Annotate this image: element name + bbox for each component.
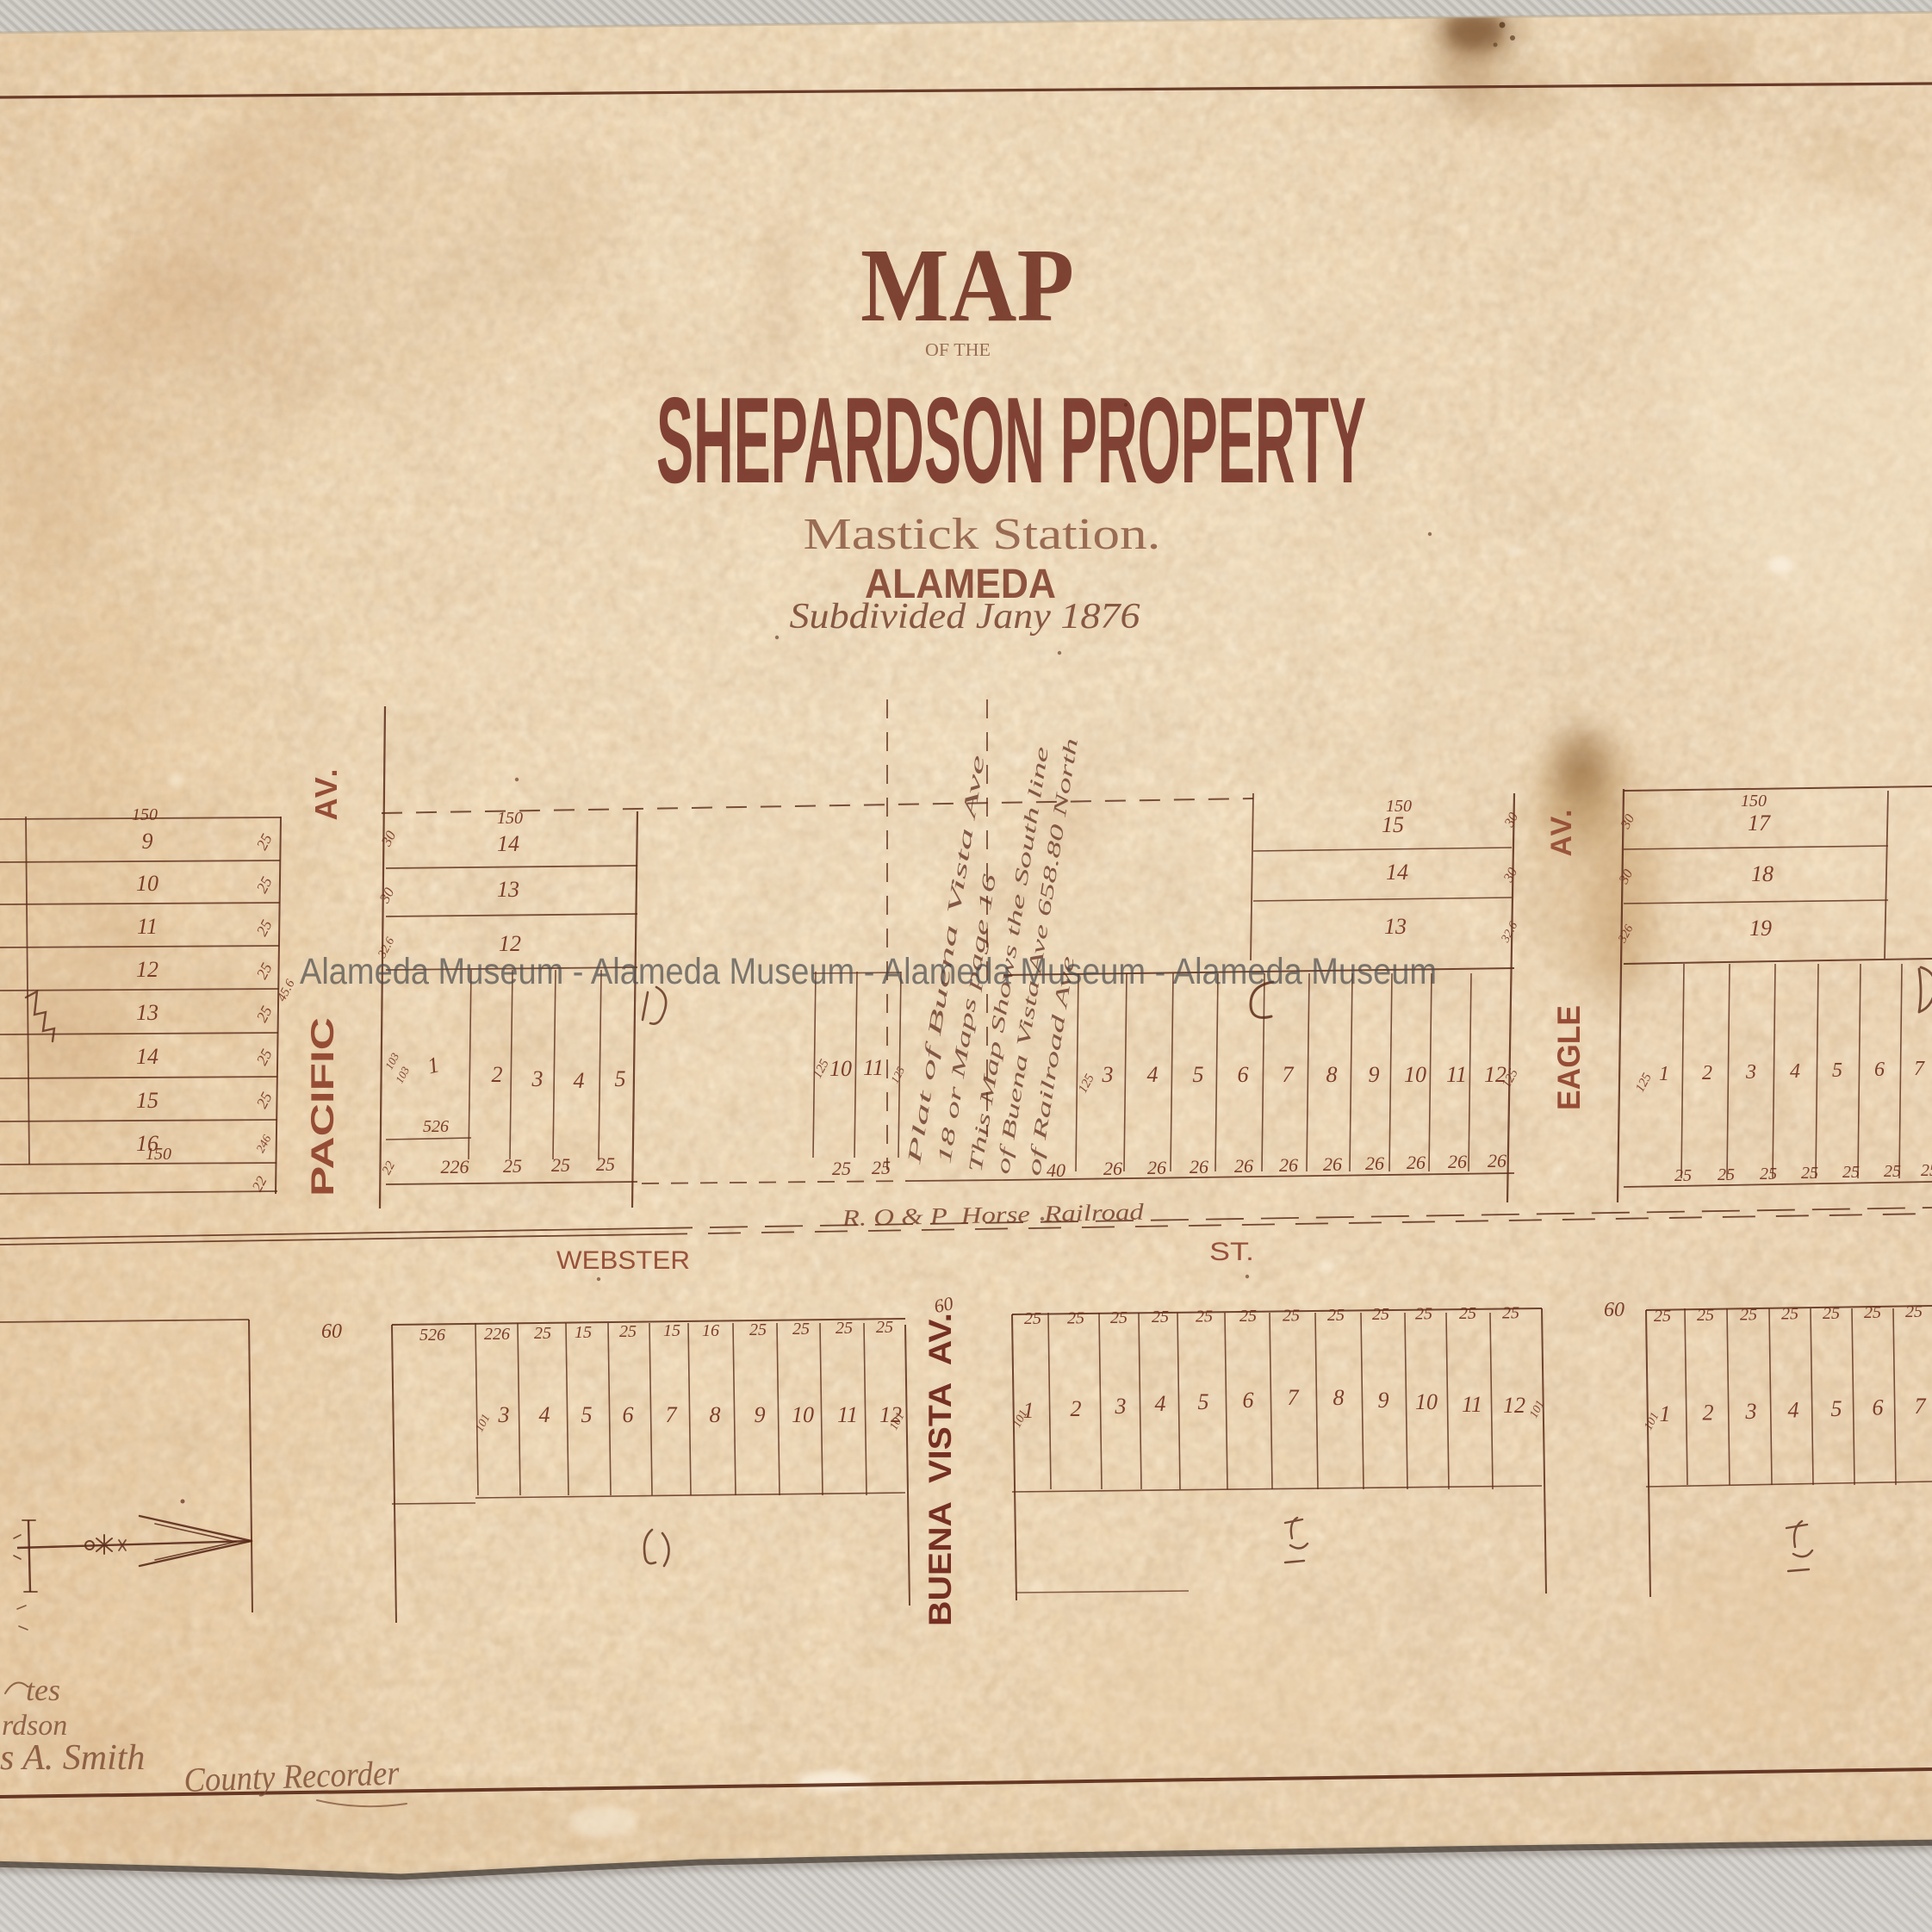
svg-text:40: 40 [1047, 1159, 1065, 1181]
svg-text:16: 16 [702, 1321, 719, 1340]
svg-text:226: 226 [441, 1156, 469, 1177]
svg-text:25: 25 [1697, 1306, 1714, 1325]
svg-text:150: 150 [1741, 792, 1767, 811]
svg-text:25: 25 [551, 1154, 570, 1176]
svg-text:25: 25 [1654, 1307, 1671, 1326]
svg-text:25: 25 [1239, 1307, 1257, 1326]
svg-text:15: 15 [663, 1321, 680, 1340]
svg-text:9: 9 [755, 1402, 766, 1427]
svg-text:11: 11 [863, 1055, 884, 1080]
svg-text:2: 2 [1703, 1401, 1714, 1426]
svg-text:18: 18 [1751, 861, 1774, 886]
svg-text:26: 26 [1448, 1151, 1467, 1172]
svg-text:150: 150 [497, 809, 523, 828]
svg-text:4: 4 [1155, 1391, 1166, 1416]
svg-text:25: 25 [1801, 1164, 1818, 1183]
svg-text:25: 25 [1864, 1303, 1881, 1322]
svg-text:5: 5 [1198, 1389, 1209, 1414]
svg-text:25: 25 [1024, 1309, 1041, 1328]
svg-text:2: 2 [492, 1062, 503, 1087]
svg-text:5: 5 [1193, 1062, 1204, 1087]
svg-text:13: 13 [1384, 914, 1407, 939]
svg-text:12: 12 [1503, 1393, 1525, 1418]
svg-text:25: 25 [1283, 1306, 1300, 1325]
svg-text:10: 10 [136, 871, 158, 896]
svg-text:25: 25 [1781, 1305, 1798, 1324]
svg-text:25: 25 [1842, 1163, 1860, 1182]
svg-text:25: 25 [1760, 1165, 1777, 1183]
svg-text:25: 25 [1740, 1305, 1757, 1324]
svg-text:6: 6 [623, 1402, 634, 1427]
svg-text:7: 7 [1914, 1058, 1925, 1080]
svg-text:9: 9 [142, 829, 153, 854]
svg-text:8: 8 [1326, 1062, 1338, 1087]
svg-text:25: 25 [1502, 1303, 1519, 1322]
svg-text:25: 25 [1674, 1166, 1692, 1185]
svg-text:25: 25 [1884, 1162, 1901, 1181]
svg-text:10: 10 [1415, 1389, 1438, 1414]
svg-text:SHEPARDSON PROPERTY: SHEPARDSON PROPERTY [656, 372, 1366, 509]
svg-text:25: 25 [1196, 1308, 1213, 1326]
svg-text:6: 6 [1873, 1395, 1884, 1420]
svg-text:3: 3 [531, 1066, 544, 1091]
svg-text:7: 7 [666, 1402, 678, 1427]
svg-text:9: 9 [1369, 1062, 1380, 1087]
svg-text:11: 11 [1446, 1062, 1467, 1087]
svg-text:15: 15 [575, 1323, 592, 1342]
svg-text:Mastick Station.: Mastick Station. [804, 510, 1161, 559]
svg-text:11: 11 [137, 914, 158, 939]
svg-text:8: 8 [710, 1402, 721, 1427]
svg-text:4: 4 [1147, 1062, 1159, 1087]
svg-text:14: 14 [1386, 860, 1408, 885]
svg-text:26: 26 [1323, 1153, 1342, 1175]
svg-text:11: 11 [1462, 1392, 1482, 1417]
svg-text:11: 11 [837, 1402, 858, 1427]
svg-text:ST.: ST. [1209, 1238, 1254, 1266]
svg-text:AV.: AV. [1545, 807, 1578, 856]
svg-text:25: 25 [876, 1318, 893, 1337]
svg-text:19: 19 [1749, 916, 1772, 941]
svg-text:2: 2 [1702, 1062, 1712, 1084]
svg-text:7: 7 [1283, 1062, 1295, 1087]
svg-text:3: 3 [1115, 1394, 1127, 1419]
svg-text:26: 26 [1365, 1152, 1384, 1174]
svg-text:13: 13 [136, 1000, 158, 1025]
svg-text:3: 3 [1745, 1399, 1757, 1424]
svg-text:25: 25 [836, 1319, 853, 1338]
svg-text:25: 25 [534, 1324, 551, 1343]
svg-text:10: 10 [1404, 1062, 1426, 1087]
svg-text:Subdivided Jany 1876: Subdivided Jany 1876 [790, 597, 1140, 637]
svg-text:5: 5 [615, 1066, 626, 1091]
svg-text:4: 4 [539, 1402, 550, 1427]
svg-text:6: 6 [1238, 1062, 1249, 1087]
svg-text:26: 26 [1147, 1157, 1166, 1178]
svg-text:26: 26 [1234, 1155, 1253, 1177]
svg-text:14: 14 [497, 831, 519, 856]
svg-text:County Recorder: County Recorder [183, 1753, 401, 1799]
svg-text:6: 6 [1243, 1388, 1254, 1413]
svg-text:150: 150 [132, 805, 158, 824]
svg-text:15: 15 [136, 1088, 158, 1113]
svg-text:25: 25 [503, 1155, 522, 1177]
svg-text:7: 7 [1288, 1385, 1300, 1410]
svg-text:17: 17 [1748, 811, 1771, 836]
svg-text:26: 26 [1103, 1158, 1122, 1179]
svg-text:226: 226 [484, 1325, 510, 1344]
svg-text:526: 526 [419, 1326, 445, 1345]
svg-text:MAP: MAP [860, 227, 1074, 344]
svg-text:5: 5 [581, 1402, 593, 1427]
svg-text:25: 25 [1067, 1308, 1084, 1327]
svg-text:10: 10 [829, 1056, 852, 1081]
svg-text:26: 26 [1407, 1152, 1426, 1173]
svg-text:13: 13 [497, 877, 519, 902]
svg-text:AV.: AV. [308, 766, 344, 820]
svg-text:3: 3 [1745, 1061, 1756, 1084]
svg-text:25: 25 [1110, 1308, 1128, 1327]
svg-text:26: 26 [1488, 1150, 1506, 1171]
svg-text:25: 25 [749, 1320, 767, 1339]
svg-text:OF THE: OF THE [925, 339, 991, 360]
svg-text:25: 25 [1823, 1304, 1840, 1323]
svg-text:526: 526 [423, 1117, 449, 1136]
svg-text:15: 15 [1382, 812, 1404, 837]
svg-text:tes: tes [26, 1673, 60, 1707]
svg-text:25: 25 [832, 1158, 851, 1179]
svg-text:25: 25 [1415, 1305, 1432, 1324]
svg-text:1: 1 [1660, 1401, 1671, 1426]
svg-text:5: 5 [1832, 1059, 1842, 1082]
svg-text:3: 3 [1102, 1062, 1114, 1087]
svg-text:6: 6 [1874, 1059, 1885, 1081]
svg-text:3: 3 [498, 1402, 510, 1427]
svg-text:7: 7 [1915, 1394, 1927, 1419]
svg-text:10: 10 [792, 1402, 814, 1427]
svg-text:14: 14 [136, 1044, 158, 1069]
svg-text:25: 25 [1921, 1161, 1932, 1180]
svg-text:25: 25 [1327, 1306, 1345, 1325]
svg-text:60: 60 [321, 1320, 342, 1343]
svg-text:26: 26 [1190, 1156, 1208, 1177]
svg-text:rdson: rdson [2, 1710, 67, 1742]
svg-text:EAGLE: EAGLE [1551, 1005, 1587, 1110]
svg-text:12: 12 [136, 957, 158, 982]
svg-text:Alameda Museum - Alameda Museu: Alameda Museum - Alameda Museum - Alamed… [300, 951, 1437, 992]
svg-text:BUENA VISTA AV.: BUENA VISTA AV. [923, 1313, 958, 1626]
svg-text:150: 150 [146, 1145, 171, 1164]
svg-text:25: 25 [1718, 1165, 1735, 1184]
svg-text:2: 2 [1071, 1396, 1082, 1421]
svg-text:1: 1 [1659, 1063, 1669, 1085]
svg-text:25: 25 [1372, 1305, 1389, 1324]
svg-text:25: 25 [792, 1320, 810, 1339]
svg-text:25: 25 [596, 1153, 615, 1175]
svg-text:s A. Smith: s A. Smith [0, 1738, 145, 1778]
svg-text:60: 60 [1604, 1299, 1624, 1321]
svg-text:25: 25 [619, 1322, 637, 1341]
svg-text:9: 9 [1378, 1388, 1389, 1413]
svg-text:8: 8 [1333, 1385, 1345, 1410]
svg-text:26: 26 [1279, 1154, 1298, 1176]
svg-text:PACIFIC: PACIFIC [305, 1017, 340, 1196]
svg-text:25: 25 [1459, 1304, 1476, 1323]
svg-text:WEBSTER: WEBSTER [556, 1246, 690, 1275]
svg-text:4: 4 [1790, 1060, 1800, 1083]
svg-text:25: 25 [1152, 1308, 1169, 1326]
svg-text:4: 4 [574, 1068, 585, 1093]
svg-text:5: 5 [1831, 1396, 1842, 1421]
svg-text:4: 4 [1788, 1398, 1799, 1423]
svg-text:25: 25 [1905, 1302, 1923, 1321]
